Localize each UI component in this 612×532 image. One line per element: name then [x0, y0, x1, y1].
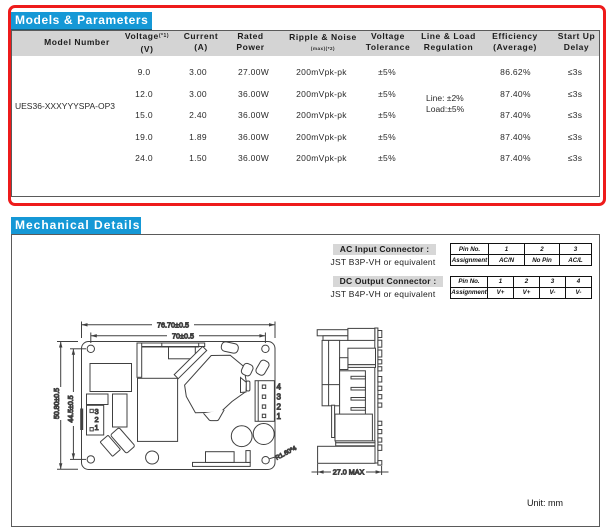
svg-text:3: 3: [277, 393, 282, 402]
svg-text:70±0.5: 70±0.5: [172, 331, 194, 340]
svg-text:1: 1: [277, 412, 282, 421]
svg-text:4: 4: [277, 383, 282, 392]
svg-text:2: 2: [277, 403, 282, 412]
svg-text:1: 1: [95, 423, 99, 432]
svg-text:44.5±0.5: 44.5±0.5: [68, 395, 75, 422]
svg-text:R1.60*4: R1.60*4: [274, 445, 298, 462]
svg-text:76.70±0.5: 76.70±0.5: [157, 320, 189, 329]
svg-text:27.0 MAX: 27.0 MAX: [333, 468, 365, 477]
svg-text:50.80±0.5: 50.80±0.5: [54, 388, 61, 419]
